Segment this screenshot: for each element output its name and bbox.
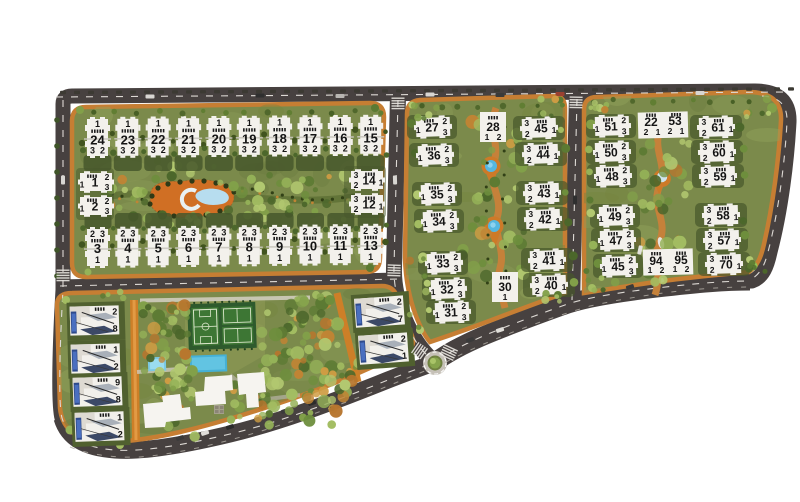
svg-text:43: 43 [537, 186, 551, 200]
svg-text:2: 2 [302, 227, 307, 237]
svg-text:3: 3 [629, 266, 634, 276]
svg-text:51: 51 [604, 119, 618, 133]
svg-text:3: 3 [105, 182, 110, 192]
svg-text:1: 1 [216, 254, 221, 264]
svg-text:1: 1 [379, 202, 384, 212]
svg-text:1: 1 [95, 255, 100, 265]
svg-text:2: 2 [533, 261, 538, 271]
svg-text:2: 2 [528, 194, 533, 204]
svg-text:3: 3 [445, 155, 450, 165]
svg-text:3: 3 [312, 227, 317, 237]
svg-text:2: 2 [625, 205, 630, 215]
svg-text:70: 70 [719, 257, 733, 271]
svg-text:35: 35 [430, 187, 444, 201]
svg-text:1: 1 [552, 125, 557, 135]
svg-text:50: 50 [604, 145, 618, 159]
svg-text:1: 1 [423, 219, 428, 229]
svg-text:1: 1 [595, 150, 600, 160]
svg-text:2: 2 [525, 129, 530, 139]
svg-text:3: 3 [709, 254, 714, 264]
svg-text:9: 9 [115, 377, 120, 387]
svg-text:2: 2 [660, 265, 665, 275]
svg-text:1: 1 [555, 190, 560, 200]
svg-text:1: 1 [80, 204, 85, 214]
svg-text:1: 1 [435, 310, 440, 320]
svg-text:3: 3 [130, 229, 135, 239]
svg-text:2: 2 [120, 229, 125, 239]
svg-text:1: 1 [247, 253, 252, 263]
svg-text:1: 1 [125, 255, 130, 265]
svg-text:3: 3 [626, 216, 631, 226]
svg-text:49: 49 [608, 209, 622, 223]
svg-text:3: 3 [622, 126, 627, 136]
svg-text:2: 2 [527, 155, 532, 165]
svg-text:10: 10 [303, 239, 317, 254]
svg-text:3: 3 [701, 117, 706, 127]
svg-text:3: 3 [448, 194, 453, 204]
svg-text:1: 1 [307, 253, 312, 263]
svg-text:1: 1 [656, 127, 661, 137]
svg-text:2: 2 [373, 143, 378, 153]
svg-text:1: 1 [562, 282, 567, 292]
svg-text:2: 2 [92, 200, 99, 214]
svg-text:1: 1 [277, 253, 282, 263]
svg-text:1: 1 [595, 124, 600, 134]
svg-text:27: 27 [425, 120, 439, 134]
svg-text:2: 2 [447, 183, 452, 193]
svg-text:3: 3 [354, 170, 359, 180]
svg-text:7: 7 [398, 313, 404, 323]
svg-text:3: 3 [702, 142, 707, 152]
svg-text:3: 3 [462, 312, 467, 322]
svg-text:2: 2 [628, 255, 633, 265]
svg-text:4: 4 [124, 241, 132, 256]
svg-text:3: 3 [282, 227, 287, 237]
svg-text:61: 61 [711, 120, 725, 134]
svg-text:57: 57 [717, 233, 731, 247]
svg-text:2: 2 [354, 180, 359, 190]
svg-text:44: 44 [536, 147, 550, 161]
svg-text:32: 32 [440, 282, 454, 296]
svg-text:2: 2 [702, 128, 707, 138]
svg-text:1: 1 [431, 287, 436, 297]
svg-text:8: 8 [246, 239, 253, 254]
svg-text:2: 2 [707, 216, 712, 226]
svg-text:1: 1 [731, 173, 736, 183]
svg-text:1: 1 [416, 125, 421, 135]
svg-text:3: 3 [242, 144, 247, 154]
svg-text:1: 1 [125, 119, 130, 129]
svg-text:3: 3 [161, 228, 166, 238]
svg-text:1: 1 [418, 153, 423, 163]
svg-text:3: 3 [532, 250, 537, 260]
svg-text:1: 1 [156, 254, 161, 264]
svg-text:34: 34 [432, 214, 446, 228]
svg-text:3: 3 [627, 240, 632, 250]
svg-text:2: 2 [312, 144, 317, 154]
svg-text:3: 3 [706, 205, 711, 215]
svg-text:2: 2 [211, 228, 216, 238]
svg-text:2: 2 [535, 286, 540, 296]
svg-text:2: 2 [333, 226, 338, 236]
svg-text:58: 58 [716, 208, 730, 222]
svg-text:3: 3 [221, 228, 226, 238]
svg-text:1: 1 [156, 119, 161, 129]
svg-text:2: 2 [90, 229, 95, 239]
svg-text:2: 2 [343, 144, 348, 154]
svg-text:2: 2 [449, 210, 454, 220]
svg-text:3: 3 [105, 206, 110, 216]
svg-text:2: 2 [252, 144, 257, 154]
svg-text:41: 41 [542, 253, 556, 267]
svg-text:3: 3 [454, 263, 459, 273]
svg-text:2: 2 [282, 144, 287, 154]
svg-text:1: 1 [599, 214, 604, 224]
svg-text:2: 2 [685, 264, 690, 274]
svg-text:2: 2 [626, 229, 631, 239]
svg-text:2: 2 [363, 226, 368, 236]
svg-text:1: 1 [247, 118, 252, 128]
svg-text:60: 60 [712, 145, 726, 159]
svg-text:3: 3 [211, 145, 216, 155]
svg-text:14: 14 [362, 174, 376, 188]
svg-text:2: 2 [457, 278, 462, 288]
svg-text:3: 3 [363, 143, 368, 153]
svg-text:7: 7 [215, 240, 222, 255]
svg-text:2: 2 [354, 204, 359, 214]
svg-text:2: 2 [151, 228, 156, 238]
svg-text:3: 3 [100, 229, 105, 239]
svg-text:3: 3 [450, 221, 455, 231]
svg-text:59: 59 [713, 169, 727, 183]
svg-text:2: 2 [444, 144, 449, 154]
svg-text:9: 9 [276, 239, 283, 254]
svg-text:3: 3 [526, 144, 531, 154]
svg-text:3: 3 [703, 166, 708, 176]
svg-text:2: 2 [191, 145, 196, 155]
svg-text:3: 3 [302, 144, 307, 154]
svg-text:2: 2 [161, 145, 166, 155]
svg-text:2: 2 [453, 252, 458, 262]
svg-text:1: 1 [368, 117, 373, 127]
svg-text:2: 2 [100, 146, 105, 156]
svg-text:2: 2 [622, 165, 627, 175]
svg-text:2: 2 [400, 334, 406, 344]
svg-text:1: 1 [368, 252, 373, 262]
svg-text:6: 6 [185, 240, 192, 255]
svg-text:3: 3 [94, 241, 101, 256]
svg-text:3: 3 [622, 152, 627, 162]
svg-text:47: 47 [609, 233, 623, 247]
svg-text:1: 1 [735, 237, 740, 247]
svg-text:1: 1 [92, 176, 99, 190]
svg-text:2: 2 [703, 153, 708, 163]
svg-text:33: 33 [436, 256, 450, 270]
svg-text:3: 3 [252, 227, 257, 237]
svg-text:2: 2 [221, 145, 226, 155]
svg-text:2: 2 [181, 228, 186, 238]
svg-text:1: 1 [427, 261, 432, 271]
svg-text:3: 3 [373, 226, 378, 236]
svg-text:3: 3 [528, 209, 533, 219]
svg-text:2: 2 [668, 126, 673, 136]
svg-text:2: 2 [644, 127, 649, 137]
svg-text:8: 8 [113, 323, 118, 333]
svg-text:1: 1 [117, 412, 122, 422]
svg-text:1: 1 [379, 178, 384, 188]
svg-text:3: 3 [191, 228, 196, 238]
svg-text:2: 2 [118, 429, 123, 439]
svg-text:31: 31 [444, 305, 458, 319]
svg-text:1: 1 [338, 117, 343, 127]
svg-text:3: 3 [333, 144, 338, 154]
svg-text:1: 1 [113, 344, 118, 354]
svg-text:5: 5 [155, 240, 162, 255]
svg-text:2: 2 [105, 172, 110, 182]
svg-text:1: 1 [216, 118, 221, 128]
svg-text:1: 1 [648, 265, 653, 275]
svg-text:2: 2 [130, 145, 135, 155]
svg-text:1: 1 [737, 261, 742, 271]
svg-text:12: 12 [362, 198, 376, 212]
svg-text:3: 3 [272, 144, 277, 154]
svg-text:2: 2 [112, 306, 117, 316]
svg-text:36: 36 [427, 148, 441, 162]
svg-text:1: 1 [680, 126, 685, 136]
svg-text:2: 2 [114, 361, 119, 371]
svg-text:2: 2 [621, 141, 626, 151]
svg-text:1: 1 [186, 254, 191, 264]
svg-text:3: 3 [707, 230, 712, 240]
svg-text:1: 1 [734, 212, 739, 222]
svg-text:45: 45 [611, 259, 625, 273]
svg-text:3: 3 [623, 176, 628, 186]
svg-text:1: 1 [80, 180, 85, 190]
svg-text:2: 2 [497, 132, 502, 142]
svg-text:1: 1 [600, 238, 605, 248]
svg-text:2: 2 [442, 116, 447, 126]
svg-text:48: 48 [605, 169, 619, 183]
svg-text:3: 3 [534, 275, 539, 285]
svg-text:1: 1 [421, 192, 426, 202]
svg-text:1: 1 [554, 151, 559, 161]
svg-text:1: 1 [729, 124, 734, 134]
svg-text:3: 3 [443, 127, 448, 137]
svg-text:1: 1 [307, 117, 312, 127]
svg-text:2: 2 [710, 265, 715, 275]
svg-text:2: 2 [396, 297, 402, 307]
svg-text:2: 2 [105, 196, 110, 206]
svg-text:1: 1 [673, 264, 678, 274]
svg-text:3: 3 [524, 118, 529, 128]
svg-text:2: 2 [272, 227, 277, 237]
svg-text:1: 1 [730, 149, 735, 159]
svg-text:2: 2 [621, 115, 626, 125]
svg-text:13: 13 [363, 238, 377, 253]
svg-text:2: 2 [704, 177, 709, 187]
svg-text:3: 3 [343, 226, 348, 236]
svg-text:1: 1 [277, 118, 282, 128]
svg-text:1: 1 [503, 292, 508, 302]
svg-text:3: 3 [120, 145, 125, 155]
svg-text:11: 11 [333, 238, 347, 253]
svg-text:42: 42 [538, 212, 552, 226]
svg-text:2: 2 [708, 241, 713, 251]
svg-text:3: 3 [181, 145, 186, 155]
svg-text:3: 3 [90, 146, 95, 156]
svg-text:3: 3 [527, 183, 532, 193]
svg-text:8: 8 [116, 394, 121, 404]
svg-text:1: 1 [556, 216, 561, 226]
svg-text:2: 2 [461, 301, 466, 311]
svg-text:1: 1 [402, 350, 408, 360]
svg-text:3: 3 [151, 145, 156, 155]
svg-text:1: 1 [186, 118, 191, 128]
svg-text:2: 2 [529, 220, 534, 230]
svg-text:1: 1 [95, 119, 100, 129]
svg-text:1: 1 [338, 252, 343, 262]
svg-text:45: 45 [534, 121, 548, 135]
svg-text:3: 3 [354, 194, 359, 204]
svg-text:1: 1 [596, 174, 601, 184]
svg-text:1: 1 [602, 264, 607, 274]
svg-text:1: 1 [560, 257, 565, 267]
svg-text:3: 3 [458, 289, 463, 299]
svg-text:2: 2 [242, 227, 247, 237]
svg-text:1: 1 [485, 132, 490, 142]
